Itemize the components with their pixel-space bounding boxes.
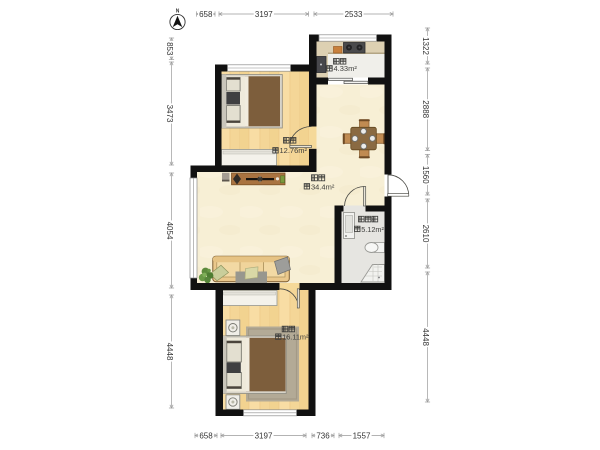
- svg-text:5.12m²: 5.12m²: [361, 225, 384, 234]
- svg-text:3197: 3197: [255, 10, 273, 19]
- svg-text:2610: 2610: [421, 225, 430, 243]
- svg-text:3197: 3197: [255, 431, 273, 440]
- svg-text:4448: 4448: [421, 328, 430, 346]
- svg-text:1322: 1322: [421, 37, 430, 55]
- svg-text:12.76m²: 12.76m²: [280, 146, 308, 155]
- svg-text:853: 853: [165, 42, 174, 56]
- svg-text:3473: 3473: [165, 105, 174, 123]
- svg-text:4.33m²: 4.33m²: [334, 64, 358, 73]
- svg-text:658: 658: [199, 431, 213, 440]
- svg-text:N: N: [176, 9, 180, 15]
- svg-text:736: 736: [316, 431, 330, 440]
- svg-text:4448: 4448: [165, 343, 174, 361]
- svg-text:16.11m²: 16.11m²: [282, 333, 309, 342]
- svg-text:658: 658: [199, 10, 213, 19]
- svg-text:4054: 4054: [165, 222, 174, 240]
- svg-text:1560: 1560: [421, 166, 430, 184]
- svg-text:1557: 1557: [353, 431, 371, 440]
- svg-text:34.4m²: 34.4m²: [311, 182, 335, 191]
- svg-text:2888: 2888: [421, 100, 430, 118]
- svg-text:2533: 2533: [345, 10, 363, 19]
